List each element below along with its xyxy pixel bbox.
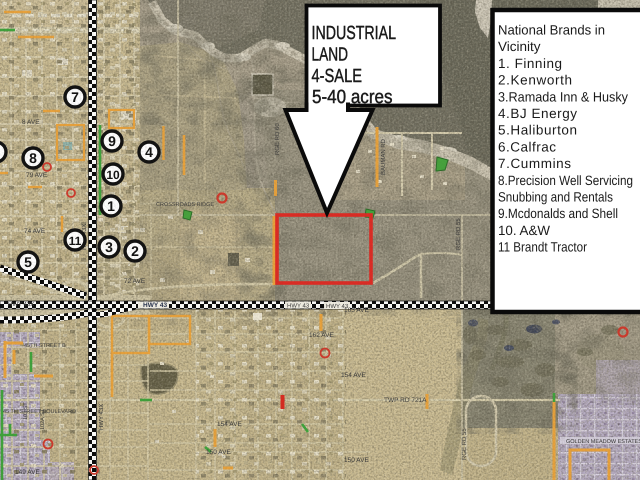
svg-text:11 Brandt Tractor: 11 Brandt Tractor (498, 240, 587, 255)
svg-text:7.Cummins: 7.Cummins (498, 156, 571, 171)
svg-text:3.Ramada Inn & Husky: 3.Ramada Inn & Husky (498, 89, 628, 104)
svg-text:2.Kenworth: 2.Kenworth (498, 73, 572, 88)
svg-text:1. Finning: 1. Finning (498, 56, 562, 71)
svg-text:Vicinity: Vicinity (498, 39, 541, 54)
svg-text:National Brands in: National Brands in (498, 23, 605, 38)
svg-text:4-SALE: 4-SALE (312, 66, 363, 87)
svg-text:INDUSTRIAL: INDUSTRIAL (312, 23, 397, 44)
svg-text:6.Calfrac: 6.Calfrac (498, 139, 556, 154)
svg-text:4.BJ Energy: 4.BJ Energy (498, 106, 577, 121)
svg-text:LAND: LAND (312, 45, 349, 66)
svg-text:9.Mcdonalds and Shell: 9.Mcdonalds and Shell (498, 206, 618, 221)
svg-text:5-40 acres: 5-40 acres (312, 87, 393, 108)
svg-text:10. A&W: 10. A&W (498, 223, 550, 238)
svg-text:8.Precision Well Servicing: 8.Precision Well Servicing (498, 173, 633, 188)
svg-text:Snubbing and Rentals: Snubbing and Rentals (498, 190, 613, 205)
svg-text:5.Haliburton: 5.Haliburton (498, 123, 577, 138)
